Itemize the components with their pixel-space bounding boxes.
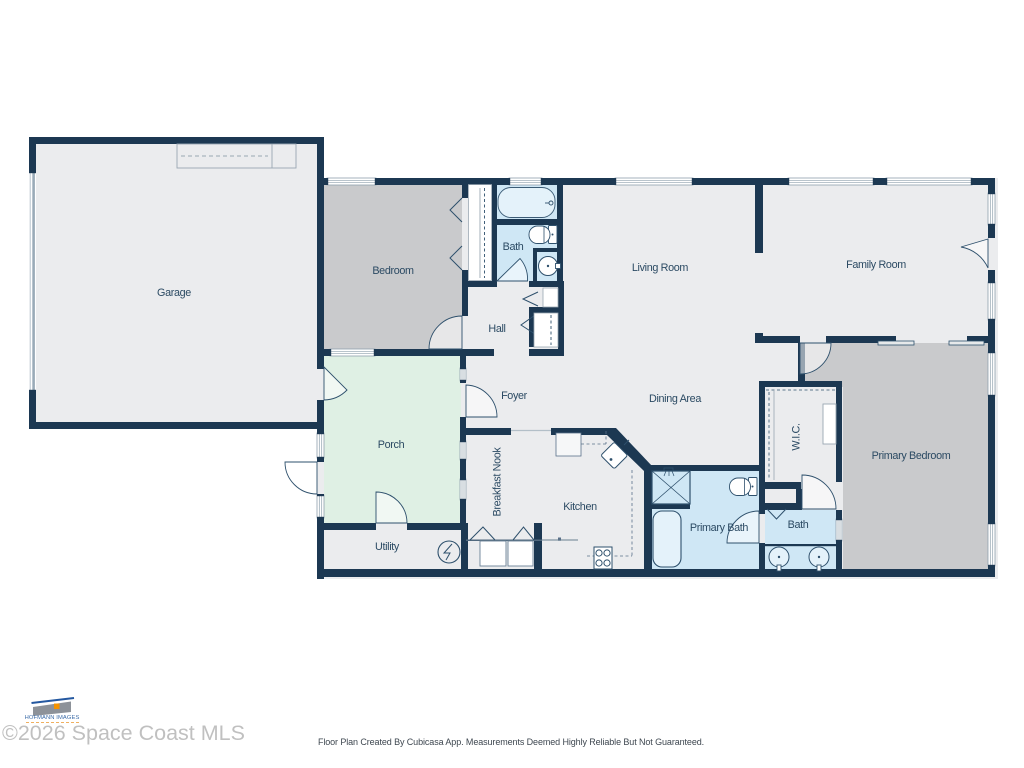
svg-text:Primary Bedroom: Primary Bedroom (872, 450, 951, 462)
svg-text:W.I.C.: W.I.C. (791, 423, 803, 451)
svg-text:Living Room: Living Room (632, 262, 689, 274)
svg-text:Breakfast Nook: Breakfast Nook (492, 447, 504, 517)
svg-text:Bedroom: Bedroom (372, 265, 414, 277)
svg-text:Foyer: Foyer (501, 390, 528, 402)
svg-text:Utility: Utility (375, 541, 400, 553)
svg-text:Floor Plan Created By Cubicasa: Floor Plan Created By Cubicasa App. Meas… (318, 737, 704, 747)
svg-text:Bath: Bath (503, 241, 524, 253)
svg-text:Bath: Bath (788, 519, 809, 531)
svg-text:Dining Area: Dining Area (649, 393, 701, 405)
svg-text:Hall: Hall (488, 323, 505, 335)
svg-text:©2026 Space Coast MLS: ©2026 Space Coast MLS (2, 721, 245, 745)
svg-text:Family Room: Family Room (846, 259, 906, 271)
svg-text:Garage: Garage (157, 287, 191, 299)
svg-text:Porch: Porch (378, 439, 405, 451)
svg-text:Primary Bath: Primary Bath (690, 522, 749, 534)
svg-text:Kitchen: Kitchen (563, 501, 597, 513)
